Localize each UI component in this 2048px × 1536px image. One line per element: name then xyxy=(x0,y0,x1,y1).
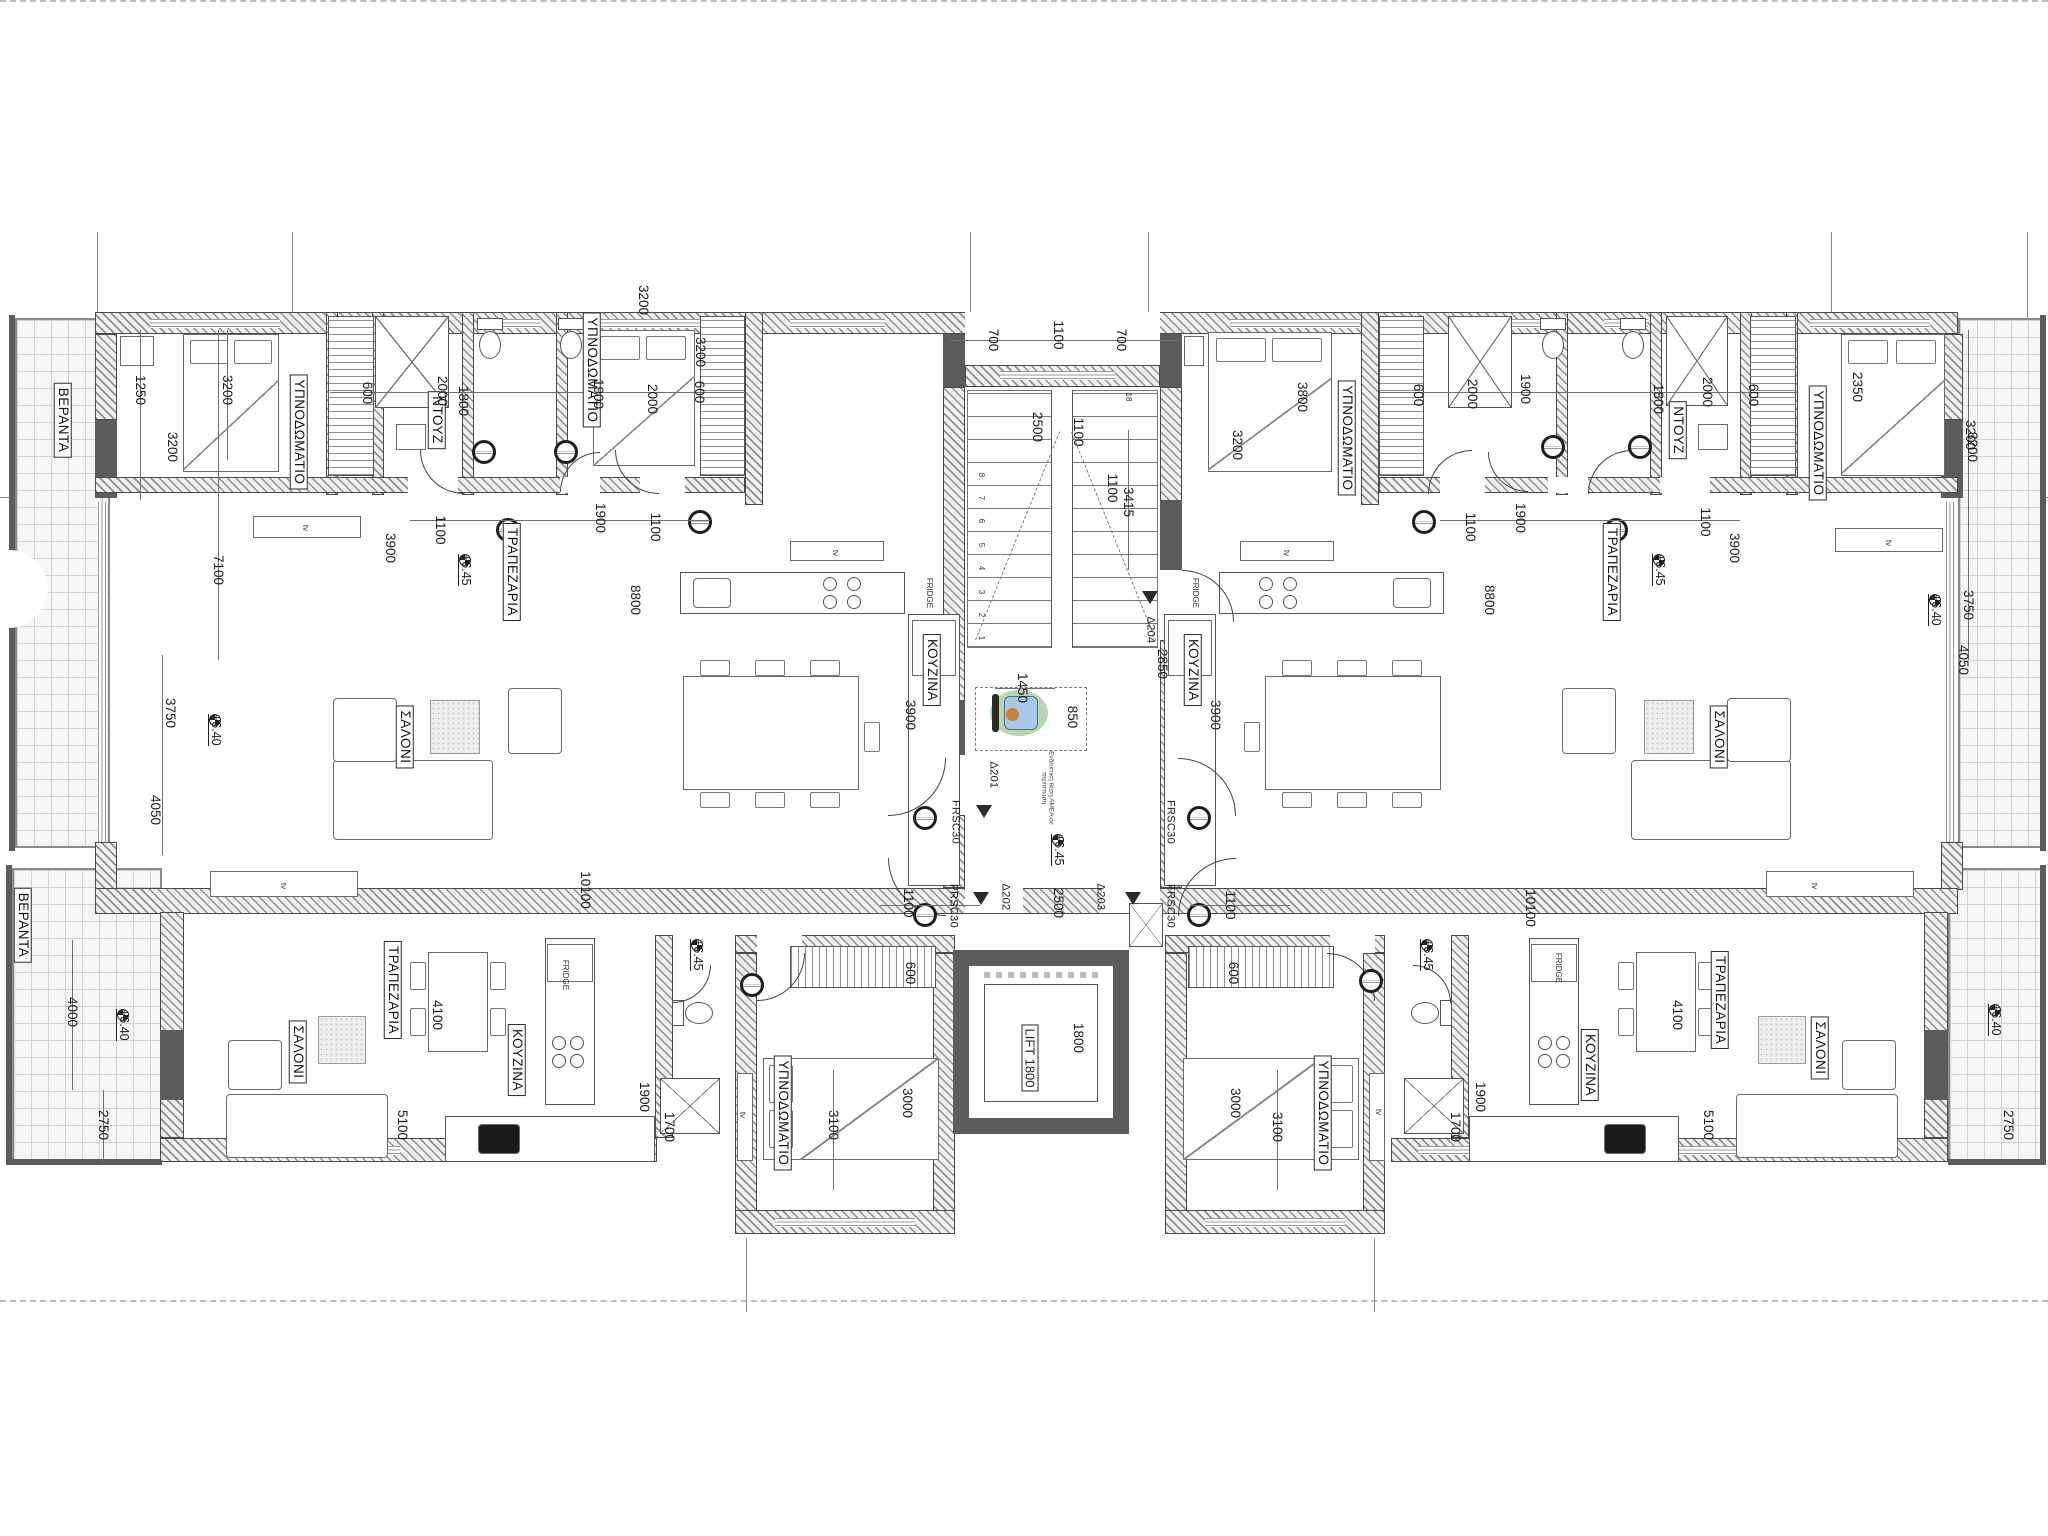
room-label: ΝΤΟΥΖ xyxy=(1669,401,1687,459)
door-tag-triangle xyxy=(1125,892,1141,905)
wall-core-stub xyxy=(943,334,965,387)
pillow xyxy=(190,340,228,364)
chair xyxy=(755,660,785,676)
stove-burner xyxy=(847,577,861,591)
dimension-label: 3000 xyxy=(1228,1088,1242,1118)
chair xyxy=(700,660,730,676)
door-size-circle xyxy=(554,440,578,464)
axis-line xyxy=(970,232,971,318)
dim-line xyxy=(1440,520,1740,521)
dimension-label: 2850 xyxy=(1155,649,1169,679)
wall-bottom-apt-east xyxy=(1924,1030,1948,1100)
dimension-label: 600 xyxy=(1746,384,1760,407)
lift-label: LIFT 1800 xyxy=(1022,1024,1039,1091)
sofa xyxy=(1736,1094,1898,1158)
level-marker: +6.45 xyxy=(691,939,703,951)
veranda-parapet xyxy=(2040,315,2046,851)
dimension-label: 3900 xyxy=(383,533,397,563)
tiny-label: tv xyxy=(279,883,287,889)
tiny-label: FRIDGE xyxy=(561,960,569,990)
dimension-label: 3200 xyxy=(1230,430,1244,460)
bath-sink xyxy=(396,424,426,450)
stove-burner xyxy=(1259,595,1273,609)
door-size-circle xyxy=(472,440,496,464)
nightstand xyxy=(120,336,154,366)
door-tag: Δ202 xyxy=(1000,884,1011,911)
dimension-label: 1800 xyxy=(456,386,470,416)
door-tag: Δ203 xyxy=(1095,884,1106,911)
chair xyxy=(1337,660,1367,676)
bed-blanket xyxy=(1183,1058,1322,1160)
tiny-label: FRIDGE xyxy=(1554,953,1562,983)
chair xyxy=(1618,962,1634,990)
window xyxy=(1205,1218,1345,1227)
door-tag-triangle xyxy=(1142,591,1158,604)
pillow xyxy=(1896,340,1936,364)
dimension-label: 1700 xyxy=(1448,1112,1462,1142)
chair xyxy=(864,722,880,752)
level-marker: +6.40 xyxy=(117,1009,129,1021)
sofa-chaise xyxy=(1727,698,1791,762)
lift-door xyxy=(984,972,1098,978)
door-size-circle xyxy=(913,806,937,830)
stair-number: 7 xyxy=(977,496,985,500)
stove-burner xyxy=(1556,1054,1570,1068)
room-label: ΒΕΡΑΝΤΑ xyxy=(54,383,72,458)
room-label: ΚΟΥΖΙΝΑ xyxy=(1184,634,1202,706)
wall-left xyxy=(95,334,117,420)
partition xyxy=(745,312,763,505)
window-veranda xyxy=(1946,502,1955,842)
dimension-label: 10100 xyxy=(578,871,592,909)
window xyxy=(585,319,715,328)
dimension-label: 10100 xyxy=(1523,889,1537,927)
dimension-label: 3200 xyxy=(636,285,650,315)
dimension-label: 3900 xyxy=(1208,700,1222,730)
dimension-label: 3100 xyxy=(1270,1112,1284,1142)
window xyxy=(150,319,280,328)
rug xyxy=(1758,1016,1806,1064)
chair xyxy=(1392,660,1422,676)
chair xyxy=(810,792,840,808)
dimension-label: 1100 xyxy=(1105,473,1119,502)
stair-number: 5 xyxy=(977,543,985,547)
dining-table xyxy=(1265,676,1441,790)
room-label: ΣΑΛΟΝΙ xyxy=(396,705,414,768)
tv-bench xyxy=(1766,871,1914,897)
door-arc xyxy=(757,953,805,1001)
dimension-label: 1100 xyxy=(1698,507,1712,536)
wall-bottom-apt-east xyxy=(1924,912,1948,1138)
dimension-label: 2750 xyxy=(96,1110,110,1140)
dimension-label: 1100 xyxy=(1223,890,1237,919)
dimension-label: 3415 xyxy=(1121,487,1135,517)
dimension-label: 2000 xyxy=(1700,377,1714,407)
window xyxy=(500,319,540,328)
tiny-label: tv xyxy=(1884,540,1892,546)
pillow xyxy=(234,340,272,364)
door-arc xyxy=(1428,450,1472,494)
dimension-label: 1900 xyxy=(1513,503,1527,533)
dim-line xyxy=(140,330,141,500)
kitchen-counter xyxy=(445,1116,655,1162)
toilet xyxy=(1540,318,1568,362)
wall-middle xyxy=(95,888,1958,914)
dimension-label: 2750 xyxy=(2001,1110,2015,1140)
veranda-parapet xyxy=(2040,865,2046,1165)
room-label: ΚΟΥΖΙΝΑ xyxy=(1581,1029,1599,1101)
dimension-label: 3200 xyxy=(165,432,179,462)
stove-burner xyxy=(1538,1054,1552,1068)
dimension-label: 5100 xyxy=(395,1110,409,1140)
dining-table xyxy=(1636,952,1696,1052)
bath-sink xyxy=(1698,424,1728,450)
service-shaft xyxy=(1129,903,1163,947)
wall-bottom-apt-west xyxy=(160,1030,184,1100)
dimension-label: 600 xyxy=(692,381,706,404)
dimension-label: 1100 xyxy=(433,515,447,544)
nightstand xyxy=(1184,336,1204,366)
door-arc xyxy=(1588,450,1632,494)
room-label: ΥΠΝΟΔΩΜΑΤΙΟ xyxy=(290,374,308,489)
room-label: ΥΠΝΟΔΩΜΑΤΙΟ xyxy=(774,1055,792,1170)
pillow xyxy=(1216,338,1266,362)
room-label: ΤΡΑΠΕΖΑΡΙΑ xyxy=(1711,951,1729,1049)
veranda-parapet xyxy=(6,865,12,1165)
dimension-label: 7100 xyxy=(211,555,225,585)
dimension-label: 3900 xyxy=(903,700,917,730)
dimension-label: 3750 xyxy=(1961,590,1975,620)
dimension-label: 1250 xyxy=(133,375,147,405)
dimension-label: 1100 xyxy=(648,512,662,541)
door-gap xyxy=(1548,477,1588,493)
dimension-label: 2000 xyxy=(645,384,659,414)
dimension-label: 2350 xyxy=(1850,372,1864,402)
level-marker: +6.40 xyxy=(1989,1004,2001,1016)
dimension-label: 3200 xyxy=(1963,420,1977,450)
stair-number: 6 xyxy=(977,519,985,523)
veranda-parapet xyxy=(1948,1159,2046,1165)
dimension-label: 4050 xyxy=(148,795,162,825)
armchair xyxy=(508,688,562,754)
dim-line xyxy=(330,392,745,393)
kitchen-sink xyxy=(478,1124,520,1154)
wall-left xyxy=(95,842,117,890)
fire-door-tag: FRSC30 xyxy=(948,884,959,928)
door-size-circle xyxy=(740,973,764,997)
dimension-label: 600 xyxy=(903,962,917,985)
tiny-label: tv xyxy=(301,525,309,531)
partition xyxy=(1361,312,1379,505)
window xyxy=(1810,319,1930,328)
door-size-circle xyxy=(1628,435,1652,459)
tiny-label: tv xyxy=(1374,1109,1382,1115)
armchair xyxy=(1842,1040,1896,1090)
axis-line xyxy=(746,1238,747,1312)
bed-blanket xyxy=(1208,378,1332,470)
door-tag-triangle xyxy=(976,805,992,818)
dimension-label: 1900 xyxy=(593,503,607,533)
floor-plan-canvas: Ενδεικτική θέση ΑΜΕΑ σε περίπτωση ΒΕΡΑΝΤ… xyxy=(0,0,2048,1536)
pillow xyxy=(646,336,686,360)
pillow xyxy=(1848,340,1888,364)
tiny-label: FRIDGE xyxy=(925,578,933,608)
stove-burner xyxy=(552,1036,566,1050)
axis-line xyxy=(1831,232,1832,318)
toilet xyxy=(477,318,505,362)
axis-line xyxy=(97,232,98,318)
toilet xyxy=(1408,1000,1452,1028)
wall-right xyxy=(1941,842,1963,890)
amea-note: Ενδεικτική θέση ΑΜΕΑ σε περίπτωση xyxy=(1040,738,1055,838)
tiny-label: tv xyxy=(831,550,839,556)
dimension-label: 1900 xyxy=(1518,374,1532,404)
dimension-label: 600 xyxy=(1411,384,1425,407)
toilet xyxy=(558,318,586,362)
chair xyxy=(1337,792,1367,808)
door-size-circle xyxy=(1412,510,1436,534)
window xyxy=(775,1218,915,1227)
wall-core-stub xyxy=(1160,334,1182,387)
dim-line xyxy=(880,905,980,906)
dimension-label: 1450 xyxy=(1015,673,1029,703)
dimension-label: 700 xyxy=(986,329,1000,352)
dimension-label: 850 xyxy=(1065,706,1079,729)
kitchen-sink xyxy=(1393,578,1431,608)
dimension-label: 1800 xyxy=(1651,384,1665,414)
wheelchair-icon-wheel xyxy=(992,694,999,732)
toilet xyxy=(1620,318,1648,362)
tiny-label: tv xyxy=(1810,883,1818,889)
room-label: ΥΠΝΟΔΩΜΑΤΙΟ xyxy=(1338,380,1356,495)
axis-line xyxy=(292,232,293,318)
chair xyxy=(1244,722,1260,752)
toilet xyxy=(672,1000,716,1028)
chair xyxy=(1282,660,1312,676)
stove-burner xyxy=(1259,577,1273,591)
dimension-label: 4100 xyxy=(430,1000,444,1030)
window xyxy=(1230,319,1360,328)
dimension-label: 600 xyxy=(1226,962,1240,985)
stove-burner xyxy=(570,1054,584,1068)
dimension-label: 1100 xyxy=(1463,512,1477,541)
sofa xyxy=(333,760,493,840)
dimension-label: 700 xyxy=(1114,329,1128,352)
closet xyxy=(1188,946,1334,988)
dimension-label: 1100 xyxy=(1071,417,1085,446)
chair xyxy=(1282,792,1312,808)
rug xyxy=(318,1016,366,1064)
stair-number: 3 xyxy=(977,590,985,594)
tiny-label: 18 xyxy=(1124,393,1132,402)
room-label: ΣΑΛΟΝΙ xyxy=(289,1020,307,1083)
stair-stringer xyxy=(1051,390,1073,648)
chair xyxy=(700,792,730,808)
stair-number: 2 xyxy=(977,613,985,617)
dining-table xyxy=(683,676,859,790)
dimension-label: 2500 xyxy=(1030,412,1044,442)
veranda-parapet xyxy=(6,1159,162,1165)
stove-burner xyxy=(1556,1036,1570,1050)
dimension-label: 3900 xyxy=(1727,533,1741,563)
room-label: ΤΡΑΠΕΖΑΡΙΑ xyxy=(503,523,521,621)
shower xyxy=(1448,316,1512,408)
stove-burner xyxy=(1538,1036,1552,1050)
dimension-label: 1100 xyxy=(1051,320,1065,349)
dimension-label: 4000 xyxy=(65,997,79,1027)
room-label: ΥΠΝΟΔΩΜΑΤΙΟ xyxy=(1314,1055,1332,1170)
boundary-line xyxy=(0,1300,2048,1302)
sofa xyxy=(1631,760,1791,840)
room-label: ΚΟΥΖΙΝΑ xyxy=(923,634,941,706)
dimension-label: 3750 xyxy=(163,698,177,728)
level-marker: +6.45 xyxy=(459,554,471,566)
wall-bottom-apt-west xyxy=(160,912,184,1138)
rug xyxy=(1644,700,1694,754)
chair xyxy=(810,660,840,676)
stair-number: 4 xyxy=(977,566,985,570)
dimension-label: 8800 xyxy=(628,585,642,615)
stove-burner xyxy=(570,1036,584,1050)
door-arc xyxy=(1178,758,1236,816)
door-tag: Δ204 xyxy=(1145,617,1156,644)
stair-number: 1 xyxy=(977,636,985,640)
fire-door-tag: FRSC30 xyxy=(1165,800,1176,844)
fridge xyxy=(547,944,593,982)
door-size-circle xyxy=(688,510,712,534)
door-size-circle xyxy=(1359,969,1383,993)
dimension-label: 3800 xyxy=(1295,382,1309,412)
dim-line xyxy=(1380,392,1795,393)
room-label: ΥΠΝΟΔΩΜΑΤΙΟ xyxy=(583,312,601,427)
chair xyxy=(410,962,426,990)
chair xyxy=(410,1008,426,1036)
window xyxy=(1000,371,1115,380)
dimension-label: 3100 xyxy=(826,1110,840,1140)
room-label: ΤΡΑΠΕΖΑΡΙΑ xyxy=(1603,523,1621,621)
axis-line xyxy=(2027,232,2028,318)
pillow xyxy=(1272,338,1322,362)
boundary-line xyxy=(0,0,2048,2)
stove-burner xyxy=(823,577,837,591)
room-label: ΚΟΥΖΙΝΑ xyxy=(508,1024,526,1096)
room-label: ΤΡΑΠΕΖΑΡΙΑ xyxy=(384,941,402,1039)
room-label: ΣΑΛΟΝΙ xyxy=(1811,1016,1829,1079)
dimension-label: 1900 xyxy=(637,1082,651,1112)
kitchen-sink xyxy=(1604,1124,1646,1154)
wheelchair-icon-head xyxy=(1006,708,1019,721)
dimension-label: 3200 xyxy=(693,337,707,367)
armchair xyxy=(228,1040,282,1090)
dimension-label: 1900 xyxy=(591,379,605,409)
sofa xyxy=(226,1094,388,1158)
door-gap xyxy=(1660,477,1710,493)
fire-door-tag: FRSC30 xyxy=(1165,884,1176,928)
tiny-label: FRIDGE xyxy=(1191,578,1199,608)
window-veranda xyxy=(98,502,107,842)
tv-bench xyxy=(1369,1073,1385,1161)
door-size-circle xyxy=(1541,435,1565,459)
stove-burner xyxy=(1283,577,1297,591)
kitchen-sink xyxy=(693,578,731,608)
stove-burner xyxy=(847,595,861,609)
dimension-label: 600 xyxy=(360,382,374,405)
tiny-label: tv xyxy=(1282,550,1290,556)
dimension-label: 2000 xyxy=(1465,379,1479,409)
dim-line xyxy=(162,655,163,855)
door-gap xyxy=(1330,935,1375,953)
pillow xyxy=(600,336,640,360)
dimension-label: 2500 xyxy=(1051,888,1065,918)
veranda-top-right xyxy=(1958,318,2046,848)
room-label: ΥΠΝΟΔΩΜΑΤΙΟ xyxy=(1809,385,1827,500)
pillow xyxy=(1329,1110,1353,1148)
room-label: ΒΕΡΑΝΤΑ xyxy=(14,888,32,963)
room-label: ΣΑΛΟΝΙ xyxy=(1710,705,1728,768)
axis-line xyxy=(1374,1238,1375,1312)
dimension-label: 5100 xyxy=(1701,1110,1715,1140)
stair-number: 8 xyxy=(977,473,985,477)
level-marker: +6.40 xyxy=(209,714,221,726)
window xyxy=(790,319,885,328)
door-tag-triangle xyxy=(973,892,989,905)
dimension-label: 3000 xyxy=(900,1088,914,1118)
dimension-label: 8800 xyxy=(1482,585,1496,615)
chair xyxy=(490,1008,506,1036)
door-size-circle xyxy=(913,903,937,927)
dim-line xyxy=(1190,905,1290,906)
rug xyxy=(430,700,480,754)
dimension-label: 2000 xyxy=(435,376,449,406)
door-size-circle xyxy=(1187,806,1211,830)
door-tag: Δ201 xyxy=(988,762,999,789)
level-marker: +6.40 xyxy=(1929,594,1941,606)
stove-burner xyxy=(823,595,837,609)
dimension-label: 4100 xyxy=(1670,1000,1684,1030)
fire-door-tag: FRSC30 xyxy=(950,800,961,844)
pillow xyxy=(1329,1065,1353,1103)
dimension-label: 1900 xyxy=(1473,1082,1487,1112)
chair xyxy=(490,962,506,990)
dimension-label: 3200 xyxy=(220,375,234,405)
level-marker: +6.45 xyxy=(1052,834,1064,846)
chair xyxy=(1392,792,1422,808)
bed-blanket xyxy=(800,1058,939,1160)
level-marker: +6.45 xyxy=(1653,554,1665,566)
dimension-label: 4050 xyxy=(1956,645,1970,675)
dimension-label: 1100 xyxy=(901,888,915,917)
axis-line xyxy=(1148,232,1149,318)
stove-burner xyxy=(552,1054,566,1068)
dimension-label: 1700 xyxy=(662,1112,676,1142)
kitchen-counter xyxy=(1469,1116,1679,1162)
chair xyxy=(1618,1008,1634,1036)
armchair xyxy=(1562,688,1616,754)
wall-core xyxy=(1160,500,1182,570)
stove-burner xyxy=(1283,595,1297,609)
tiny-label: tv xyxy=(738,1112,746,1118)
dim-line xyxy=(410,520,710,521)
sofa-chaise xyxy=(333,698,397,762)
level-marker: +6.45 xyxy=(1421,939,1433,951)
door-size-circle xyxy=(1187,903,1211,927)
dimension-label: 1800 xyxy=(1071,1023,1085,1053)
chair xyxy=(755,792,785,808)
